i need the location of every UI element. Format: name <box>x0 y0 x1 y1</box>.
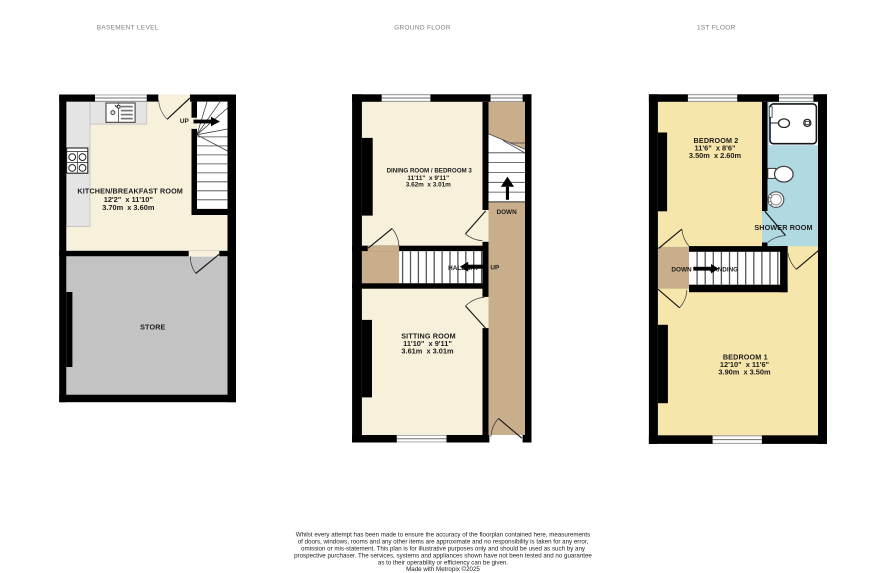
svg-text:3.62m x 3.01m: 3.62m x 3.01m <box>406 182 451 189</box>
svg-text:1ST FLOOR: 1ST FLOOR <box>697 24 736 31</box>
svg-text:SHOWER ROOM: SHOWER ROOM <box>754 223 812 232</box>
svg-text:prospective purchaser. The ser: prospective purchaser. The services, sys… <box>294 553 592 560</box>
svg-text:Made with Metropix ©2025: Made with Metropix ©2025 <box>406 566 480 573</box>
svg-text:3.50m x 2.60m: 3.50m x 2.60m <box>689 151 742 160</box>
svg-text:BASEMENT LEVEL: BASEMENT LEVEL <box>97 24 159 31</box>
svg-text:3.90m x 3.50m: 3.90m x 3.50m <box>718 368 771 377</box>
svg-text:UP: UP <box>180 118 190 125</box>
svg-text:Whilst every attempt has been: Whilst every attempt has been made to en… <box>296 532 590 539</box>
svg-text:DOWN: DOWN <box>671 266 692 273</box>
svg-text:3.61m x 3.01m: 3.61m x 3.01m <box>401 347 454 356</box>
svg-text:STORE: STORE <box>140 322 165 331</box>
svg-text:DINING ROOM / BEDROOM 3: DINING ROOM / BEDROOM 3 <box>387 168 473 175</box>
svg-text:of doors, windows, rooms and a: of doors, windows, rooms and any other i… <box>298 539 589 546</box>
svg-text:GROUND FLOOR: GROUND FLOOR <box>394 24 451 31</box>
svg-text:DOWN: DOWN <box>496 209 517 216</box>
svg-text:3.70m x 3.60m: 3.70m x 3.60m <box>102 203 155 212</box>
svg-text:omission or mis-statement. Thi: omission or mis-statement. This plan is … <box>301 546 586 553</box>
svg-text:UP: UP <box>490 265 500 272</box>
